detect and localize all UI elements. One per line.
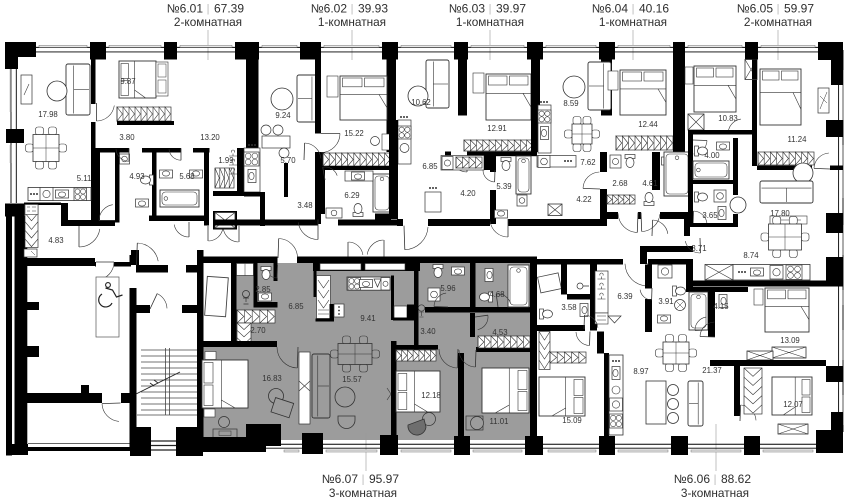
svg-text:|: | <box>632 3 635 15</box>
svg-text:1.99: 1.99 <box>218 156 233 165</box>
svg-text:8.59: 8.59 <box>563 99 578 108</box>
svg-text:№6.04: №6.04 <box>592 2 629 16</box>
svg-text:5.70: 5.70 <box>280 156 296 165</box>
svg-text:4.68: 4.68 <box>489 290 504 299</box>
svg-text:|: | <box>714 474 717 486</box>
svg-text:17.80: 17.80 <box>770 209 790 218</box>
svg-text:12.44: 12.44 <box>638 120 658 129</box>
svg-text:6.39: 6.39 <box>617 292 632 301</box>
svg-text:40.16: 40.16 <box>639 2 669 16</box>
svg-text:8.74: 8.74 <box>743 251 759 260</box>
svg-text:|: | <box>489 3 492 15</box>
svg-text:4.20: 4.20 <box>460 189 476 198</box>
svg-text:4.22: 4.22 <box>576 195 591 204</box>
svg-text:1-комнатная: 1-комнатная <box>456 15 524 29</box>
svg-text:6.85: 6.85 <box>422 162 438 171</box>
svg-text:88.62: 88.62 <box>721 472 751 486</box>
svg-text:8.97: 8.97 <box>633 367 648 376</box>
svg-text:|: | <box>207 3 210 15</box>
svg-text:№6.07: №6.07 <box>322 472 359 486</box>
svg-text:95.97: 95.97 <box>369 472 399 486</box>
svg-text:11.24: 11.24 <box>788 135 808 144</box>
svg-text:6.29: 6.29 <box>344 191 359 200</box>
svg-text:|: | <box>362 474 365 486</box>
svg-text:15.09: 15.09 <box>562 416 582 425</box>
svg-text:3.91: 3.91 <box>658 297 673 306</box>
svg-text:15.57: 15.57 <box>342 375 362 384</box>
svg-text:9.87: 9.87 <box>120 77 135 86</box>
svg-text:2-комнатная: 2-комнатная <box>174 15 242 29</box>
svg-text:№6.06: №6.06 <box>674 472 711 486</box>
svg-text:39.97: 39.97 <box>496 2 526 16</box>
svg-text:10.83: 10.83 <box>718 114 738 123</box>
svg-text:4.53: 4.53 <box>492 328 507 337</box>
svg-text:№6.05: №6.05 <box>737 2 774 16</box>
svg-text:4.00: 4.00 <box>704 151 720 160</box>
svg-text:3-комнатная: 3-комнатная <box>329 486 397 500</box>
svg-text:10.62: 10.62 <box>411 98 431 107</box>
svg-text:3.71: 3.71 <box>691 244 706 253</box>
svg-text:|: | <box>351 3 354 15</box>
svg-text:5.11: 5.11 <box>77 174 92 183</box>
svg-text:5.68: 5.68 <box>179 172 194 181</box>
svg-text:17.98: 17.98 <box>38 110 58 119</box>
svg-text:11.01: 11.01 <box>490 417 509 426</box>
svg-text:13.09: 13.09 <box>780 336 800 345</box>
svg-text:1-комнатная: 1-комнатная <box>599 15 667 29</box>
svg-text:3.58: 3.58 <box>561 303 576 312</box>
svg-text:12.91: 12.91 <box>487 124 507 133</box>
svg-text:67.39: 67.39 <box>214 2 244 16</box>
svg-text:12.18: 12.18 <box>421 391 441 400</box>
svg-text:4.15: 4.15 <box>713 302 729 311</box>
svg-text:|: | <box>777 3 780 15</box>
svg-text:3.48: 3.48 <box>297 201 312 210</box>
svg-text:3.40: 3.40 <box>420 327 436 336</box>
svg-text:3.80: 3.80 <box>119 133 135 142</box>
svg-text:2.85: 2.85 <box>255 285 271 294</box>
svg-text:39.93: 39.93 <box>358 2 388 16</box>
svg-text:1-комнатная: 1-комнатная <box>318 15 386 29</box>
svg-text:9.41: 9.41 <box>360 314 375 323</box>
svg-text:4.61: 4.61 <box>642 179 657 188</box>
svg-text:2-комнатная: 2-комнатная <box>744 15 812 29</box>
svg-text:15.22: 15.22 <box>344 129 364 138</box>
svg-text:4.83: 4.83 <box>48 236 63 245</box>
svg-text:5.39: 5.39 <box>496 182 511 191</box>
svg-text:16.83: 16.83 <box>262 374 282 383</box>
svg-text:21.37: 21.37 <box>702 366 722 375</box>
svg-text:6.85: 6.85 <box>288 302 304 311</box>
svg-text:3.65: 3.65 <box>702 211 718 220</box>
svg-text:2.68: 2.68 <box>612 179 627 188</box>
svg-text:9.24: 9.24 <box>275 111 291 120</box>
svg-text:3-комнатная: 3-комнатная <box>681 486 749 500</box>
svg-text:2.70: 2.70 <box>250 326 266 335</box>
svg-text:59.97: 59.97 <box>784 2 814 16</box>
svg-text:№6.01: №6.01 <box>167 2 204 16</box>
svg-text:4.93: 4.93 <box>129 172 144 181</box>
svg-text:12.07: 12.07 <box>783 400 803 409</box>
svg-text:№6.03: №6.03 <box>449 2 486 16</box>
svg-text:7.62: 7.62 <box>580 158 595 167</box>
svg-text:№6.02: №6.02 <box>311 2 348 16</box>
svg-text:5.96: 5.96 <box>440 284 455 293</box>
svg-text:13.20: 13.20 <box>200 133 220 142</box>
